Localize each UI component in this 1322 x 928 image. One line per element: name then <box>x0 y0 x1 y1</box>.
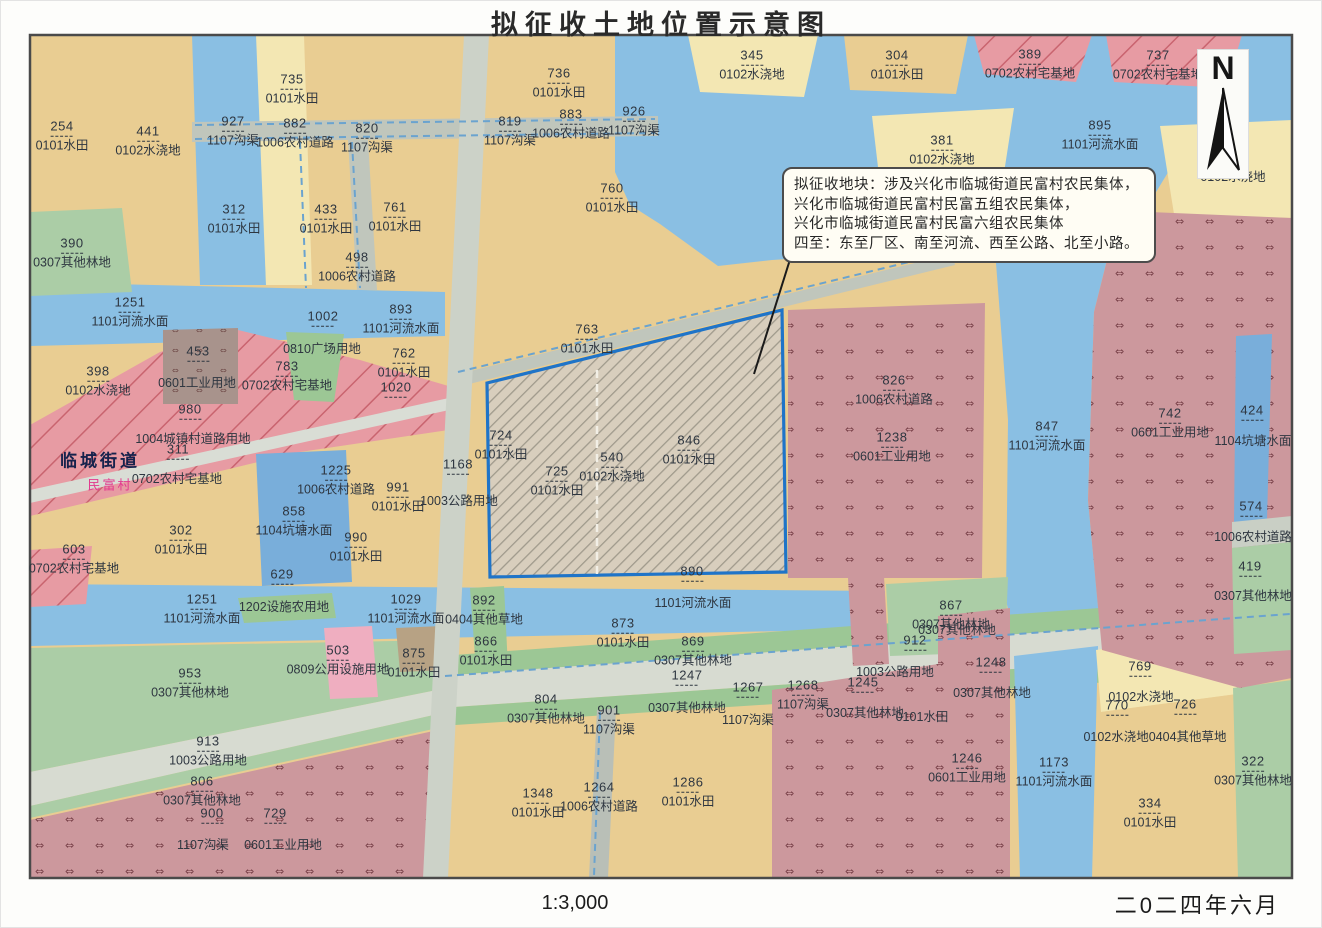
map-canvas: ⇔ ⇔ <box>0 0 1322 928</box>
north-label: N <box>1198 50 1248 86</box>
map-title: 拟征收土地位置示意图 <box>0 3 1322 42</box>
callout-line: 兴化市临城街道民富村民富六组农民集体 <box>794 215 1144 235</box>
callout-line: 兴化市临城街道民富村民富五组农民集体， <box>794 196 1144 216</box>
north-arrow: N <box>1198 50 1248 178</box>
north-arrow-icon <box>1201 86 1245 174</box>
callout-line: 四至：东至厂区、南至河流、西至公路、北至小路。 <box>794 235 1144 255</box>
date-label: 二0二四年六月 <box>1115 888 1280 920</box>
callout-line: 拟征收地块：涉及兴化市临城街道民富村农民集体， <box>794 176 1144 196</box>
scale-label: 1:3,000 <box>500 892 650 915</box>
callout-box: 拟征收地块：涉及兴化市临城街道民富村农民集体， 兴化市临城街道民富村民富五组农民… <box>782 167 1156 263</box>
land-acquisition-map: ⇔ ⇔ <box>0 0 1322 928</box>
